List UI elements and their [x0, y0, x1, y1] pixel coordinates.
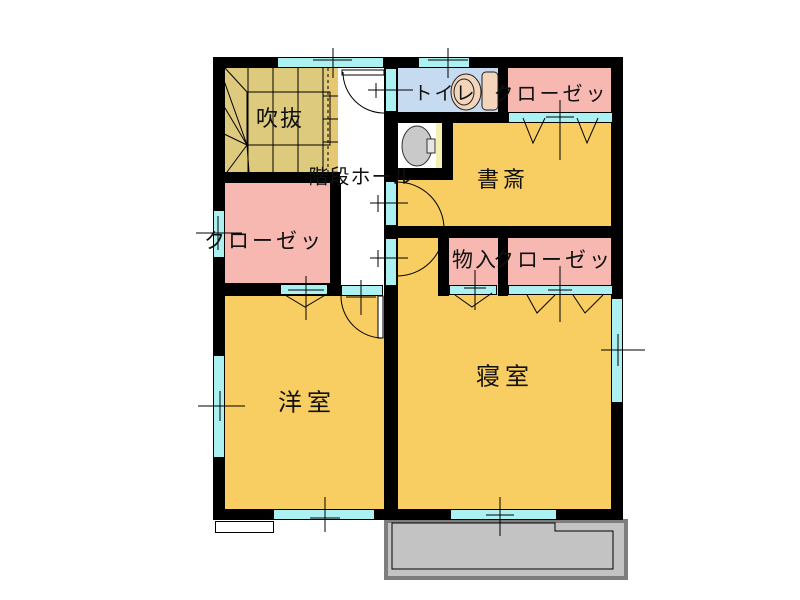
label-toilet: トイレ — [413, 79, 476, 106]
window-bottom-bedroom — [450, 509, 557, 520]
window-right-bedroom — [611, 298, 623, 403]
wall-center-vertical — [384, 68, 398, 520]
label-stair-hall: 階段ホール — [309, 161, 414, 190]
label-study: 書斎 — [477, 162, 529, 194]
door-closet-left — [280, 284, 328, 295]
door-closet-topright — [508, 112, 613, 123]
doorway-toilet — [385, 68, 397, 112]
label-closet-midright: クローゼッ — [493, 244, 613, 274]
doorway-hall-bedroom — [385, 238, 397, 286]
door-arc-toilet — [342, 70, 384, 113]
label-closet-topright: クローゼッ — [494, 78, 609, 107]
floor-plan: 吹抜 トイレ クローゼッ 書斎 階段ホール クローゼッ 物入 クローゼッ 洋室 … — [0, 0, 800, 600]
label-western-room: 洋室 — [278, 383, 336, 418]
wall-closet-left-right — [330, 183, 341, 296]
door-storage — [449, 285, 497, 295]
window-left-western — [213, 355, 225, 458]
window-top-1 — [277, 57, 384, 68]
label-bedroom: 寝室 — [476, 357, 534, 392]
label-storage: 物入 — [452, 244, 498, 274]
label-void: 吹抜 — [256, 101, 304, 133]
wall-toilet-bottom — [384, 112, 508, 123]
stairs-edge-strip — [328, 68, 338, 172]
wall-storage-left — [438, 238, 449, 296]
door-closet-midright — [508, 285, 613, 295]
doorway-western-room — [341, 285, 383, 296]
balcony — [384, 519, 628, 580]
window-bottom-western — [273, 509, 375, 520]
window-top-2 — [418, 57, 470, 68]
porch-outline — [215, 521, 274, 533]
wall-study-left — [442, 123, 453, 180]
label-closet-left: クローゼッ — [204, 225, 324, 255]
